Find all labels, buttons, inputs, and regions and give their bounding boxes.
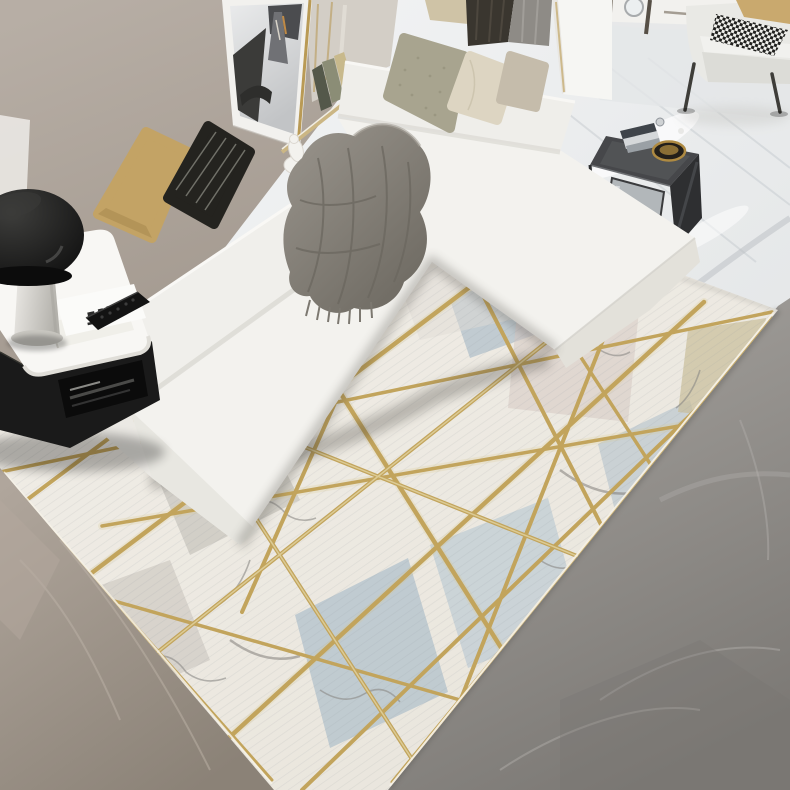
pillow-gray (500, 55, 545, 108)
curtain-dark (466, 0, 514, 46)
washer-door (625, 0, 643, 16)
leaning-artwork (222, 0, 312, 148)
living-room-photo (0, 0, 790, 790)
brass-bowl (653, 142, 685, 161)
curtain-gray (508, 0, 552, 46)
